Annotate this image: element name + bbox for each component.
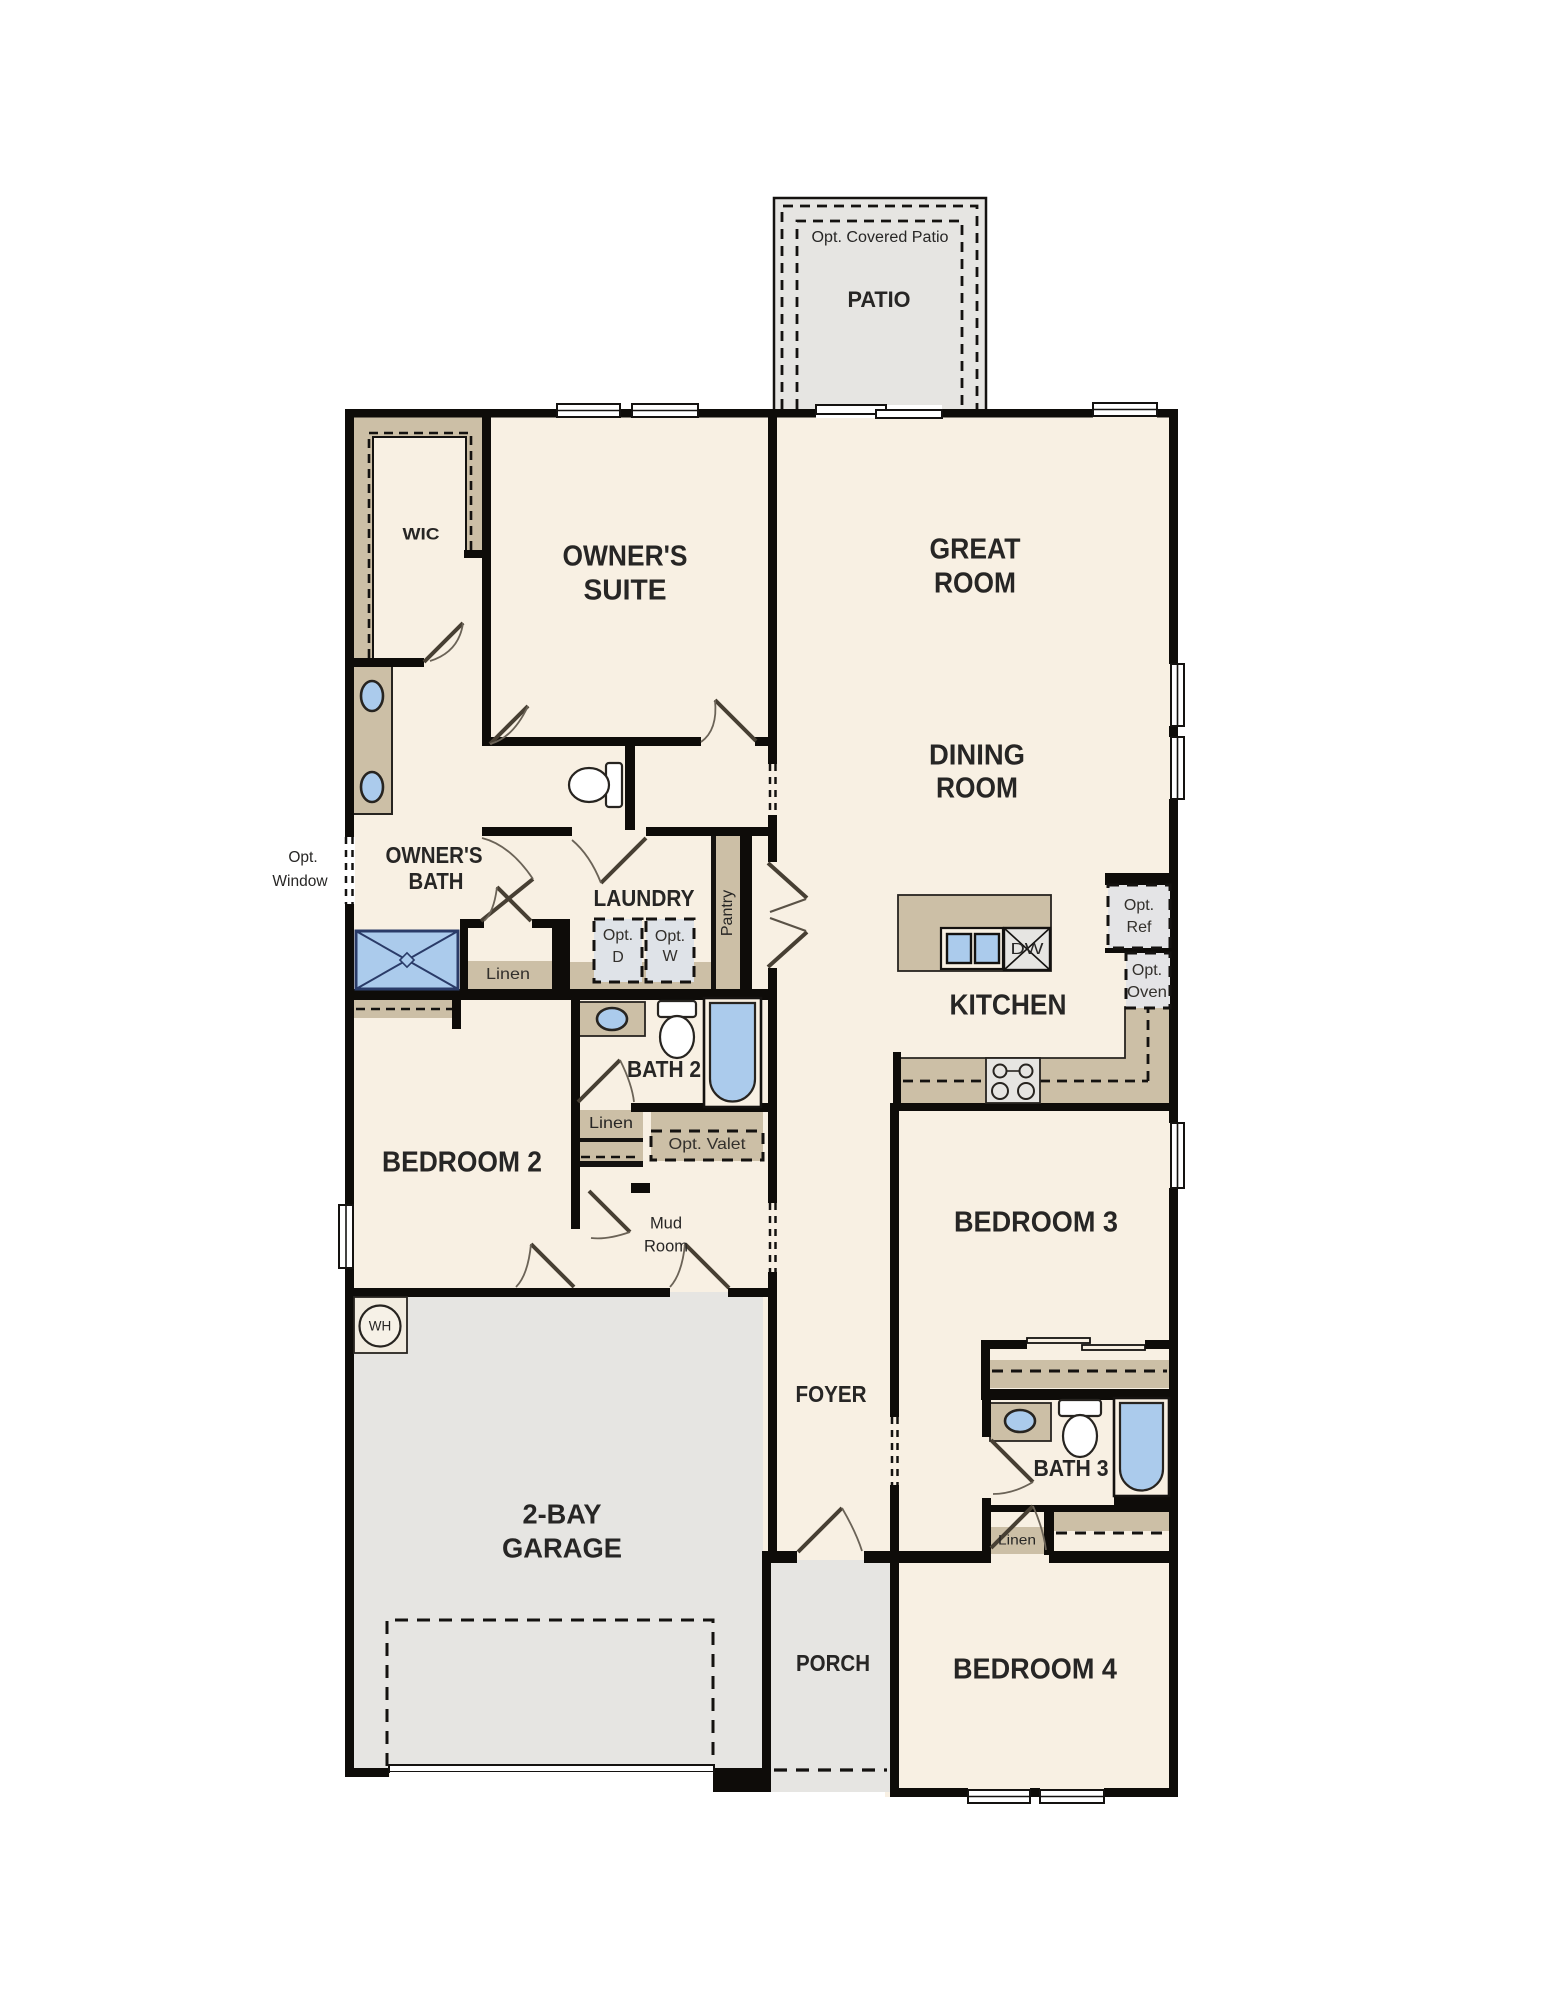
svg-text:BEDROOM 4: BEDROOM 4 [953, 1654, 1117, 1686]
svg-text:Opt.: Opt. [288, 849, 317, 866]
svg-text:2-BAY: 2-BAY [523, 1498, 602, 1529]
svg-text:Pantry: Pantry [719, 890, 736, 936]
svg-text:DINING: DINING [929, 740, 1025, 772]
svg-text:Linen: Linen [589, 1115, 633, 1132]
svg-text:BEDROOM 3: BEDROOM 3 [954, 1207, 1118, 1239]
svg-text:GREAT: GREAT [930, 534, 1021, 566]
svg-text:Opt.: Opt. [655, 928, 685, 945]
svg-text:D: D [612, 949, 624, 966]
svg-text:LAUNDRY: LAUNDRY [594, 885, 695, 911]
svg-text:WH: WH [369, 1319, 392, 1334]
svg-text:DW: DW [1011, 941, 1045, 958]
svg-text:WIC: WIC [403, 524, 440, 543]
svg-text:Opt.: Opt. [603, 927, 633, 944]
svg-text:Opt. Covered Patio: Opt. Covered Patio [812, 229, 949, 246]
svg-text:BEDROOM 2: BEDROOM 2 [382, 1147, 542, 1179]
svg-text:PORCH: PORCH [796, 1650, 870, 1676]
svg-text:Linen: Linen [486, 966, 530, 983]
svg-text:KITCHEN: KITCHEN [950, 990, 1067, 1022]
svg-text:Oven: Oven [1127, 984, 1167, 1001]
svg-text:GARAGE: GARAGE [502, 1532, 622, 1563]
svg-text:Ref: Ref [1127, 919, 1152, 936]
svg-text:Window: Window [272, 873, 328, 890]
svg-text:OWNER'S: OWNER'S [386, 842, 483, 868]
svg-text:PATIO: PATIO [848, 287, 911, 312]
svg-text:Opt.: Opt. [1132, 962, 1162, 979]
svg-text:Linen: Linen [998, 1532, 1036, 1548]
svg-text:BATH 3: BATH 3 [1034, 1455, 1109, 1481]
svg-text:W: W [662, 948, 678, 965]
svg-text:OWNER'S: OWNER'S [563, 541, 688, 573]
svg-text:ROOM: ROOM [936, 773, 1018, 805]
svg-text:SUITE: SUITE [584, 575, 667, 607]
svg-text:FOYER: FOYER [796, 1381, 867, 1407]
svg-text:BATH 2: BATH 2 [627, 1056, 701, 1082]
svg-text:Room: Room [644, 1237, 688, 1255]
svg-text:BATH: BATH [409, 868, 464, 894]
svg-text:Opt.: Opt. [1124, 897, 1154, 914]
svg-text:Mud: Mud [650, 1214, 682, 1232]
svg-text:Opt. Valet: Opt. Valet [669, 1136, 747, 1153]
svg-text:ROOM: ROOM [934, 568, 1016, 600]
